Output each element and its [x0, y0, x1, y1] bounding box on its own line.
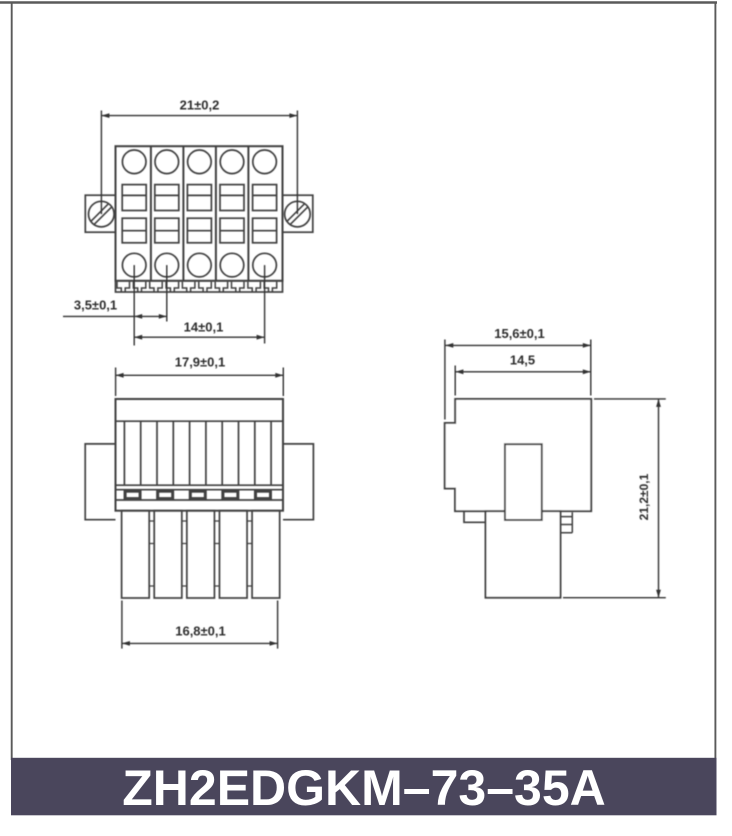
svg-text:14±0,1: 14±0,1 — [184, 320, 224, 335]
svg-text:21,2±0,1: 21,2±0,1 — [637, 473, 651, 520]
svg-text:15,6±0,1: 15,6±0,1 — [494, 326, 545, 341]
svg-text:21±0,2: 21±0,2 — [180, 98, 220, 113]
svg-text:ZH2EDGKM–73–35A: ZH2EDGKM–73–35A — [122, 760, 606, 816]
svg-text:17,9±0,1: 17,9±0,1 — [175, 355, 226, 370]
svg-text:16,8±0,1: 16,8±0,1 — [175, 624, 226, 639]
svg-text:3,5±0,1: 3,5±0,1 — [74, 298, 117, 313]
svg-text:14,5: 14,5 — [510, 353, 535, 368]
